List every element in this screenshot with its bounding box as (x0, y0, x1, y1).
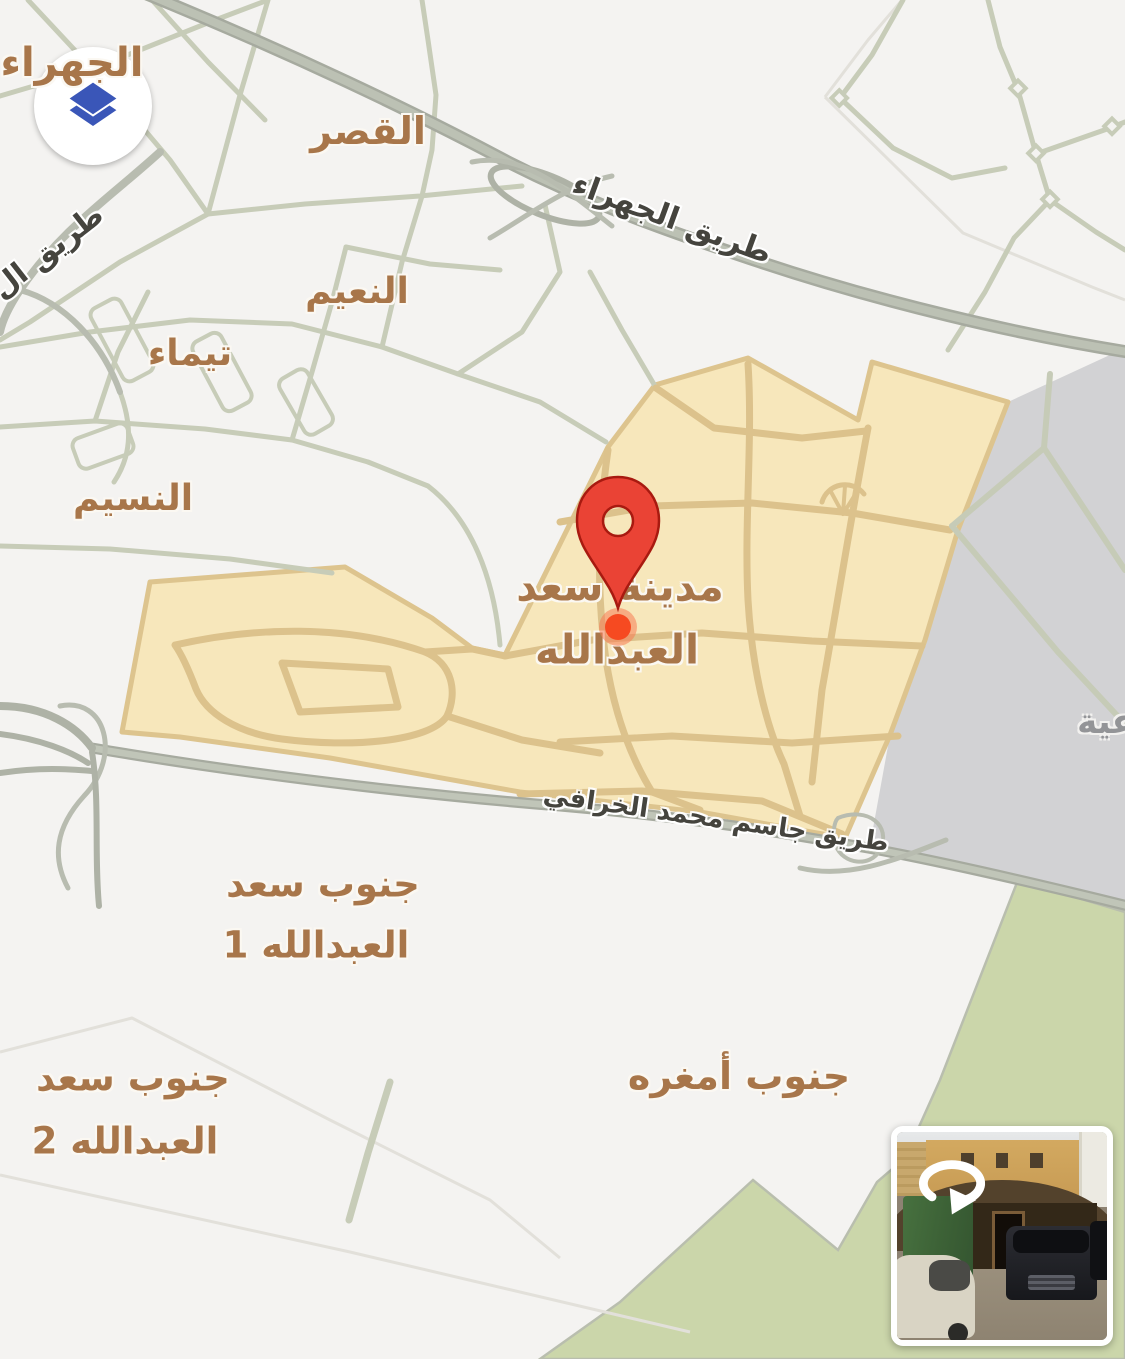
pin-dot (605, 614, 631, 640)
sv-suv-grille (1028, 1275, 1075, 1290)
sv-dark-car-edge (1090, 1221, 1113, 1279)
sv-white-car (891, 1255, 975, 1338)
sv-dark-suv (1006, 1226, 1096, 1301)
sv-wall-right (1079, 1132, 1107, 1207)
street-view-thumbnail[interactable] (891, 1126, 1113, 1346)
sv-suv-windshield (1013, 1230, 1089, 1252)
sv-car-wheel (948, 1323, 968, 1343)
pin-icon (577, 477, 659, 608)
layers-button[interactable] (34, 47, 152, 165)
sv-window (1030, 1153, 1043, 1169)
street-view-rotate-icon (910, 1144, 998, 1219)
location-pin[interactable] (560, 455, 680, 660)
layers-icon (60, 73, 126, 139)
sv-car-windshield (929, 1260, 969, 1292)
map-view: الجهراء القصر النعيم تيماء النسيم مدينة … (0, 0, 1125, 1359)
